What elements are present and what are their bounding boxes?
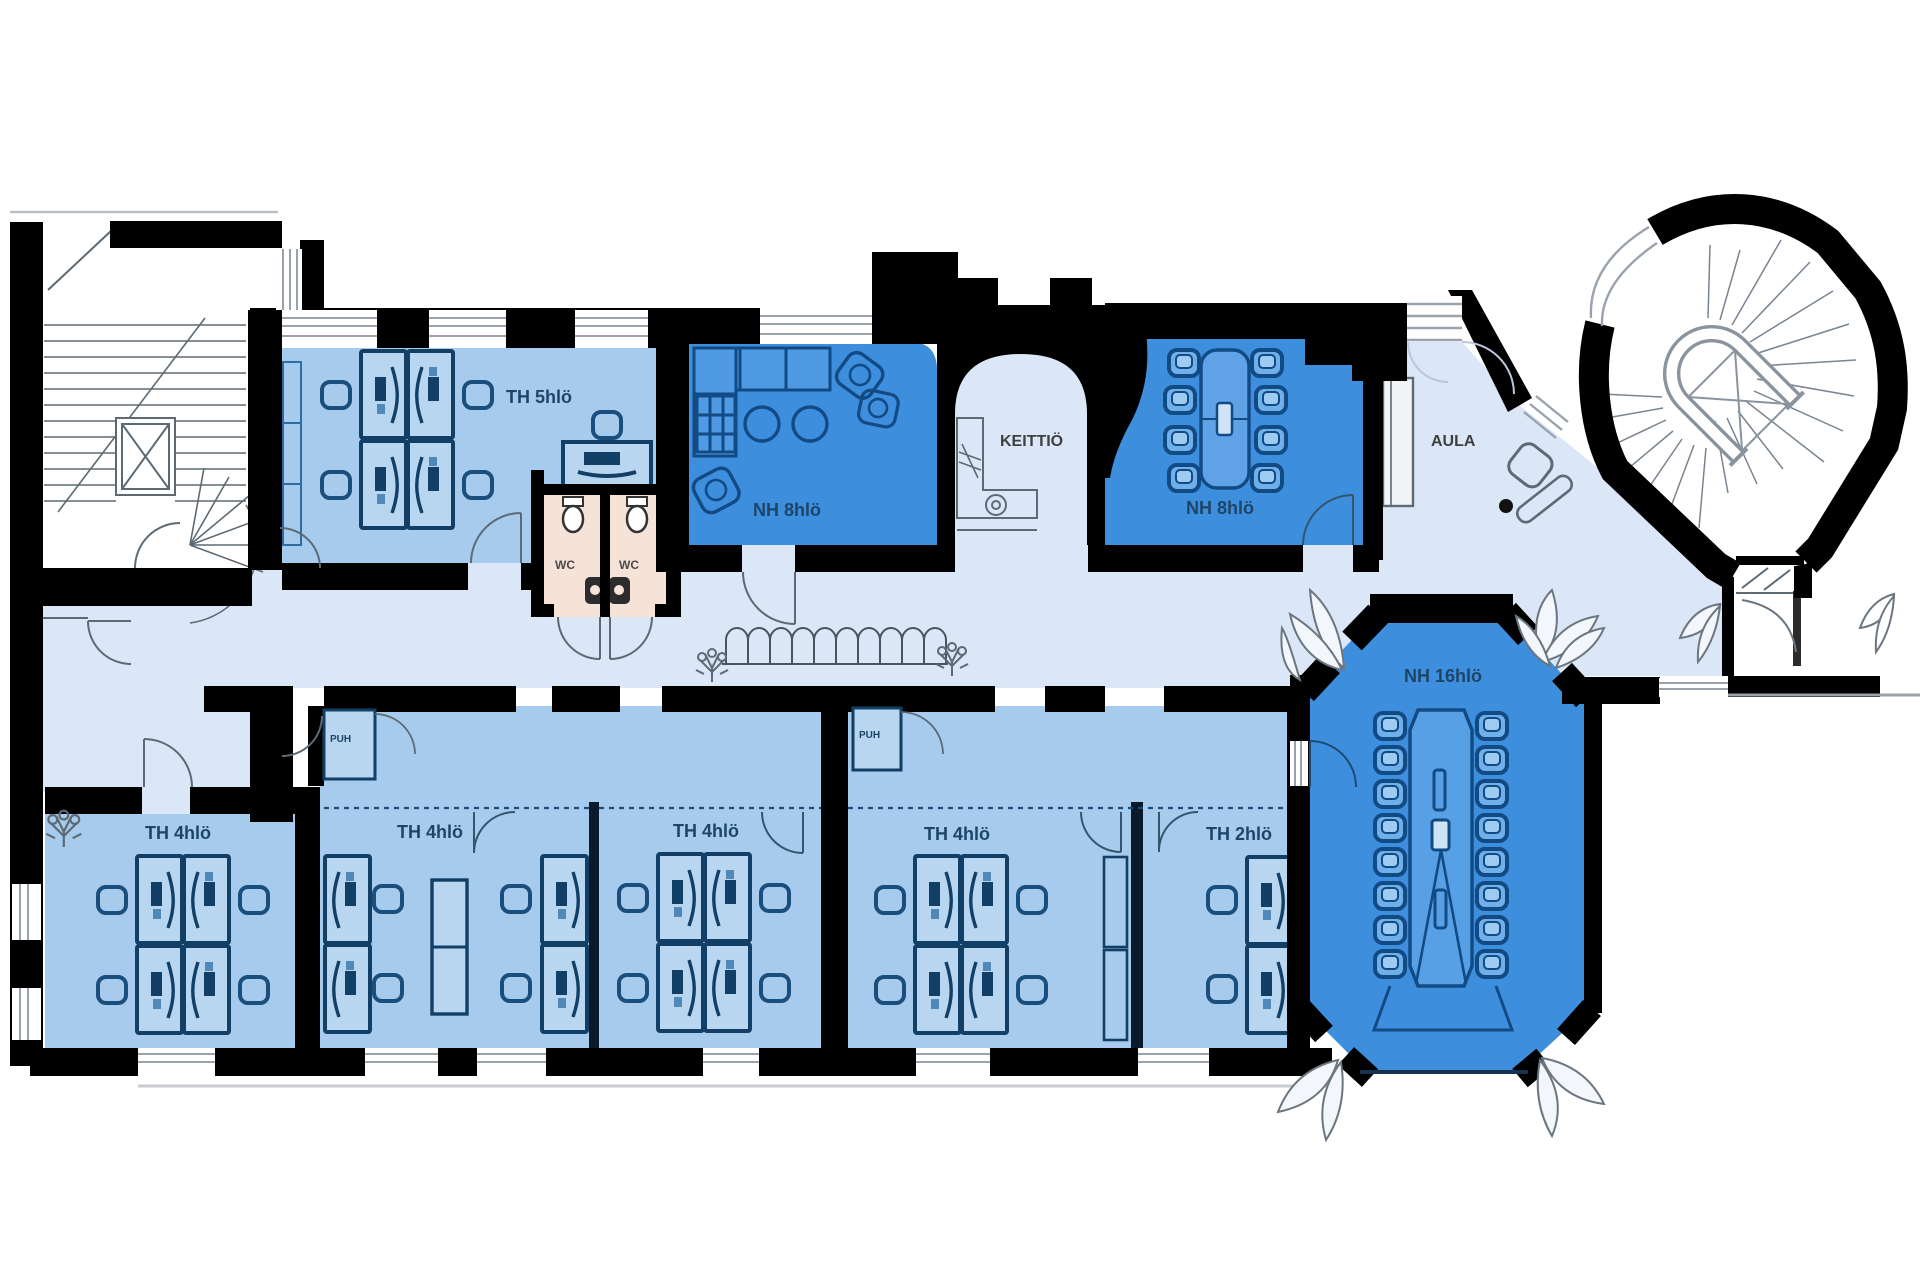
svg-text:WC: WC — [555, 558, 575, 572]
svg-text:TH 4hlö: TH 4hlö — [145, 823, 211, 843]
svg-text:TH 4hlö: TH 4hlö — [397, 822, 463, 842]
svg-text:TH 4hlö: TH 4hlö — [673, 821, 739, 841]
svg-text:NH 8hlö: NH 8hlö — [1186, 498, 1254, 518]
svg-text:TH 4hlö: TH 4hlö — [924, 824, 990, 844]
svg-text:WC: WC — [619, 558, 639, 572]
svg-text:PUH: PUH — [859, 730, 880, 741]
svg-text:KEITTIÖ: KEITTIÖ — [1000, 431, 1063, 450]
svg-text:AULA: AULA — [1431, 433, 1476, 450]
svg-text:TH 2hlö: TH 2hlö — [1206, 824, 1272, 844]
svg-text:TH 5hlö: TH 5hlö — [506, 387, 572, 407]
svg-text:NH 16hlö: NH 16hlö — [1404, 666, 1482, 686]
svg-text:PUH: PUH — [330, 734, 351, 745]
svg-text:NH 8hlö: NH 8hlö — [753, 500, 821, 520]
